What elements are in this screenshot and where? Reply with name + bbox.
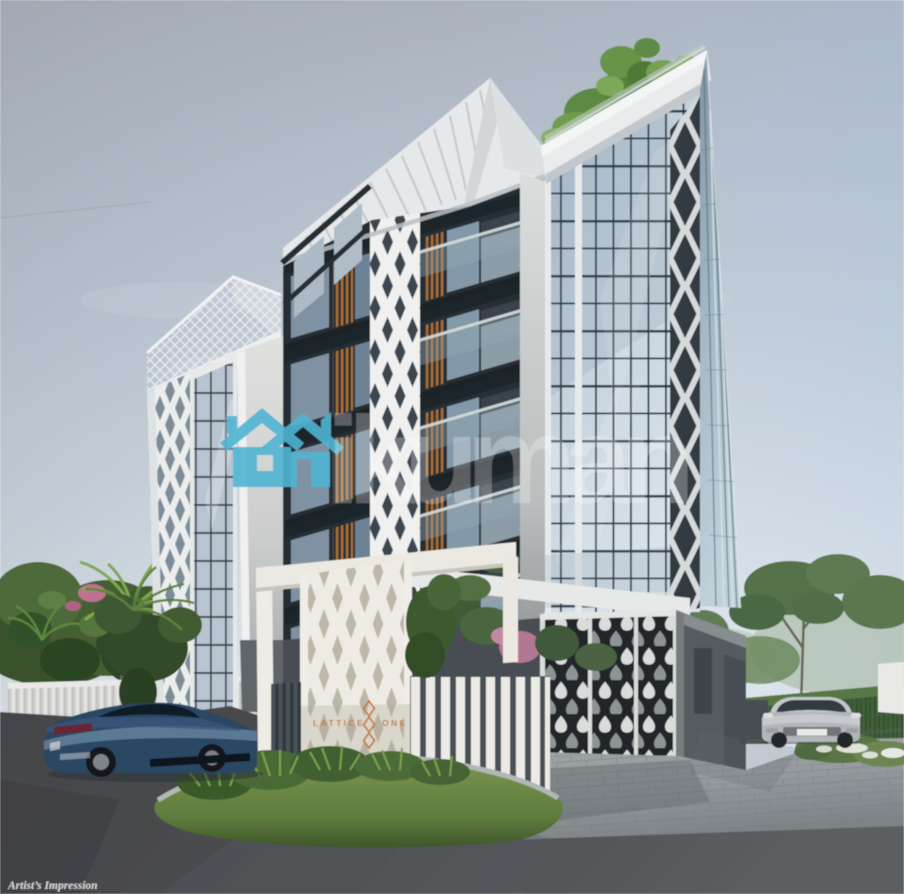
svg-text:ikuman: ikuman <box>326 392 688 530</box>
svg-text:ONE: ONE <box>382 718 408 728</box>
svg-text:Artist’s Impression: Artist’s Impression <box>7 880 98 892</box>
svg-text:LATTICE: LATTICE <box>313 718 365 728</box>
